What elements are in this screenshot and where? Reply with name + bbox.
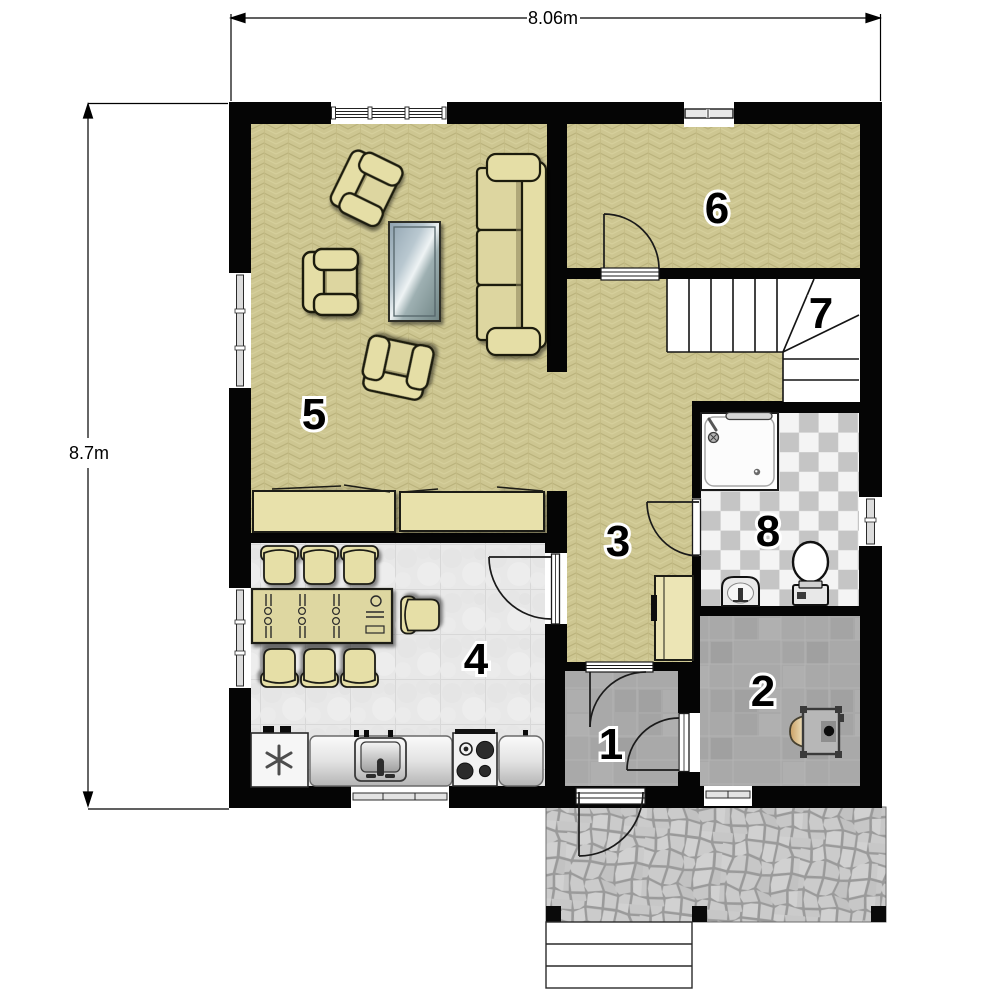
svg-text:3: 3 <box>606 517 630 566</box>
svg-text:8.7m: 8.7m <box>69 443 109 463</box>
svg-text:2: 2 <box>751 667 775 716</box>
svg-text:4: 4 <box>464 635 489 684</box>
svg-text:8: 8 <box>756 507 780 556</box>
svg-text:6: 6 <box>705 184 729 233</box>
svg-text:5: 5 <box>302 390 326 439</box>
svg-text:8.06m: 8.06m <box>528 8 578 28</box>
svg-text:7: 7 <box>809 289 833 338</box>
svg-text:1: 1 <box>599 720 623 769</box>
